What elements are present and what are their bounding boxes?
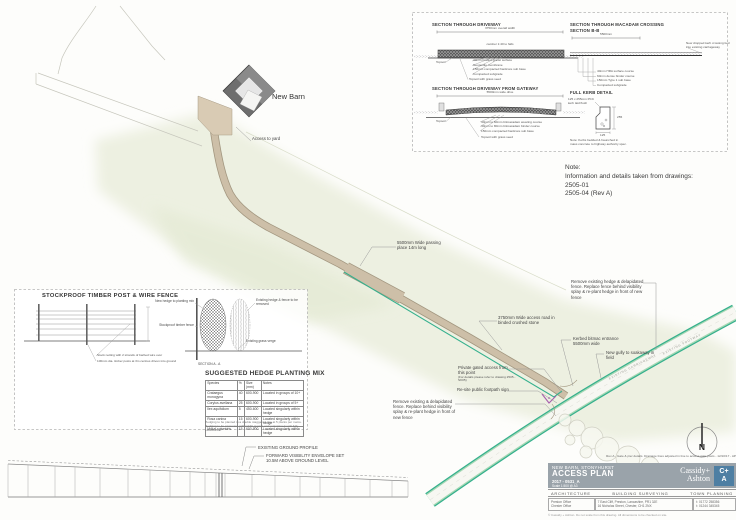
discipline-building-surveying: BUILDING SURVEYING [612, 491, 668, 496]
annotation-kerbed-entrance: Kerbed bitmac entrance 5500mm wide [573, 336, 633, 346]
col-header: Size (mm) [244, 381, 261, 391]
cell: 5 [237, 407, 244, 417]
note-title: Note: [565, 164, 735, 173]
annotation-private-access-sub: (For details please refer to drawing 250… [458, 376, 518, 384]
table-row: Ilex aquifolium5450-600Located singularl… [206, 407, 304, 417]
annotation-footpath-sign: Re-site public footpath sign [457, 387, 509, 392]
sections-panel-border [413, 13, 728, 152]
section3-label: 150mm compacted hardcore sub base [481, 130, 534, 134]
new-hedge-label: New hedge to planting mix [148, 299, 194, 303]
fence-post-label: 100mm dia. timber posts at 3m centres dr… [97, 360, 177, 364]
annotation-remove-fence-bottom: Remove existing & delapidated fence. Rep… [393, 399, 457, 420]
section1-topsoil: Topsoil [436, 61, 446, 65]
section1-dim: 3750mm overall width [437, 27, 563, 31]
contact-line: 16 Nicholas Street, Chester, CH1 2NX [598, 504, 691, 508]
cell: Located singularly within hedge [261, 407, 303, 417]
cell: Crataegus monogyna [206, 391, 238, 401]
section2-subtitle: SECTION B-B [570, 28, 599, 33]
hedge-table-title: SUGGESTED HEDGE PLANTING MIX [205, 370, 325, 379]
cell: 40 [237, 391, 244, 401]
contact-offices: Preston Office Chester Office [548, 498, 595, 511]
annotation-remove-hedge-top: Remove existing hedge & delapidated fenc… [571, 279, 645, 300]
discipline-architecture: ARCHITECTURE [551, 491, 591, 496]
discipline-town-planning: TOWN PLANNING [690, 491, 733, 496]
brand-logo: C+ A [714, 466, 734, 486]
table-row: Crataegus monogyna40600-900Located in gr… [206, 391, 304, 401]
fence-ref-label: Stockproof timber fence [146, 323, 194, 327]
section1-camber: camber 1:40 to falls [437, 43, 563, 47]
profile-label-envelope2: 10.5M ABOVE GROUND LEVEL [266, 458, 329, 463]
access-yard-label: Access to yard [252, 136, 280, 141]
brand-bottom: Ashton [658, 475, 710, 483]
kerb-note2: mass concrete to highway authority spec. [570, 143, 627, 147]
titleblock-left: NEW BARN, STONYHURST ACCESS PLAN 2017 - … [548, 463, 658, 488]
titleblock-band: NEW BARN, STONYHURST ACCESS PLAN 2017 - … [548, 463, 736, 488]
note-block: Note: Information and details taken from… [565, 164, 735, 199]
col-header: Species [206, 381, 238, 391]
cell: 600-900 [244, 391, 261, 401]
ground-profile [8, 447, 408, 497]
drawing-title: ACCESS PLAN [552, 470, 658, 479]
note-line2: 2505-01 [565, 182, 735, 191]
barn-label: New Barn [272, 92, 305, 101]
north-label: N [696, 442, 708, 452]
section1-bottom-label: Topsoil with grass seed [469, 78, 501, 82]
new-barn-building [198, 65, 275, 135]
copyright-line: © Cassidy + Ashton. Do not scale from th… [548, 513, 736, 517]
section2-title: SECTION THROUGH MACADAM CROSSING [570, 22, 664, 27]
section4-title: FULL KERB DETAIL [570, 90, 613, 95]
section3-dim: 5500mm wide drive [437, 91, 563, 95]
annotation-access-road: 3750mm Wide access road in binded crushe… [498, 315, 560, 325]
annotation-private-access: Private gated access from this point [458, 365, 508, 375]
existing-hedge-label: Existing hedge & fence to be removed [256, 298, 304, 307]
contact-line: t: 01244 345345 [696, 504, 733, 508]
contact-phones: t: 01772 258356 t: 01244 345345 [693, 498, 736, 511]
verge-label: Existing grass verge [246, 339, 288, 343]
annotation-passing-place: 5500mm Wide passing place 14m long [397, 240, 443, 250]
revision-note: Rev A - Gate & pier details. Drainage li… [540, 455, 736, 459]
section-aa-label: SECTION A - A [198, 362, 220, 366]
table-header-row: Species % Size (mm) Notes [206, 381, 304, 391]
note-line3: 2505-04 (Rev A) [565, 190, 735, 199]
logo-bottom: A [714, 476, 734, 484]
section2-dim: 5500mm [572, 33, 640, 37]
note-line1: Information and details taken from drawi… [565, 173, 735, 182]
section2-label: Compacted subgrade [597, 84, 627, 88]
drawing-scale: Scale 1:500 @ A3 [552, 484, 658, 488]
brand-wordmark: Cassidy+ Ashton [658, 463, 710, 488]
fence-wire-label: Stock netting with 2 strands of barbed w… [97, 354, 177, 358]
cell: Ilex aquifolium [206, 407, 238, 417]
section2-side-note: New dropped kerb crossing tied into exis… [686, 42, 730, 50]
cell: 450-600 [244, 407, 261, 417]
kerb-label: 125 x 255mm PCC kerb laid flush [568, 98, 596, 106]
logo-top: C+ [714, 466, 734, 476]
cell: Located in groups of 10+ [261, 391, 303, 401]
kerb-dim-height: 255 [617, 116, 622, 120]
profile-label-existing: EXISTING GROUND PROFILE [258, 445, 318, 450]
col-header: % [237, 381, 244, 391]
col-header: Notes [261, 381, 303, 391]
hedge-table-footnote: Hedging to be planted in a double stagge… [205, 421, 304, 433]
section3-bottom-label: Topsoil with grass seed [481, 136, 513, 140]
contact-addresses: 7 East Cliff, Preston, Lancashire, PR1 3… [595, 498, 694, 511]
contact-line: Chester Office [551, 504, 592, 508]
disciplines-row: ARCHITECTURE BUILDING SURVEYING TOWN PLA… [548, 489, 736, 497]
drawing-sheet: New Barn Access to yard 5500mm Wide pass… [0, 0, 736, 520]
section3-topsoil: Topsoil [436, 120, 446, 124]
contacts-row: Preston Office Chester Office 7 East Cli… [548, 498, 736, 511]
